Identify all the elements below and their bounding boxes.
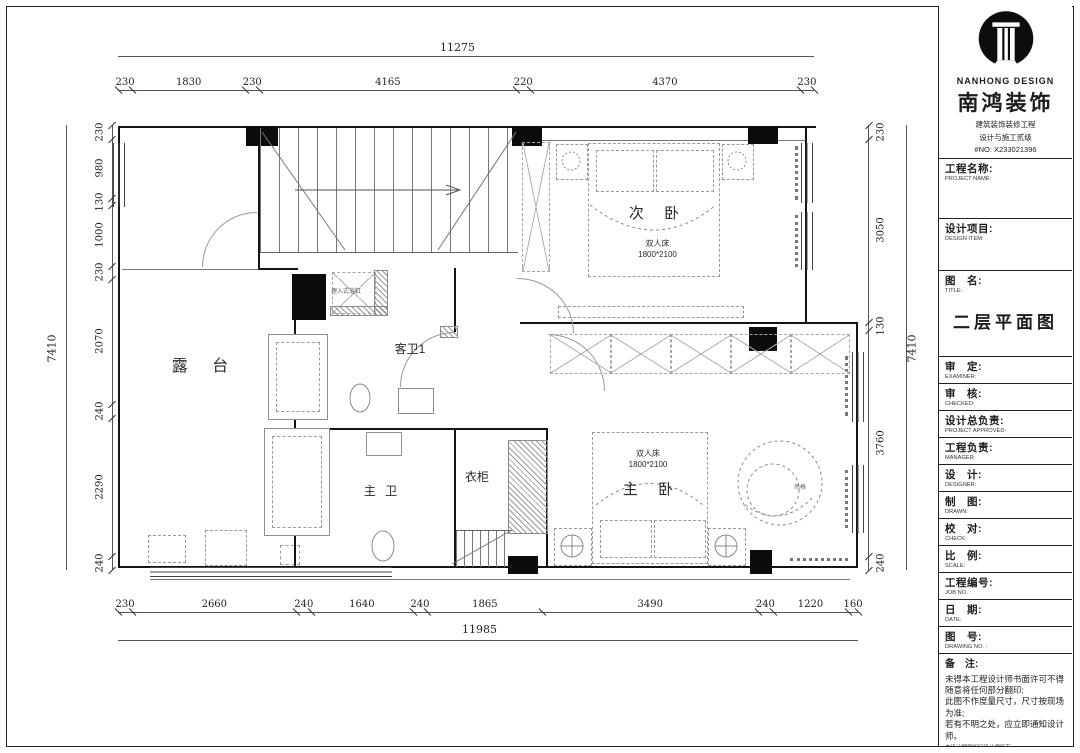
dim-label: 240 <box>756 599 775 610</box>
bed-type: 双人床 <box>610 238 705 249</box>
dim-label: 160 <box>844 599 863 610</box>
pillow <box>656 150 714 192</box>
note-line: 随意将任何部分翻印; <box>945 685 1066 696</box>
bed-label-secondary: 双人床 1800*2100 <box>610 238 705 260</box>
tb-field-check: 校 对:CHECK: <box>939 519 1072 546</box>
dim-label: 240 <box>410 599 429 610</box>
dim-label: 2660 <box>202 599 227 610</box>
wall-edge <box>150 579 850 580</box>
dim-tick <box>108 567 116 575</box>
field-label-en: TITLE: <box>945 288 1060 294</box>
dim-label: 1220 <box>798 599 823 610</box>
door-arc <box>517 278 574 333</box>
radiator-coil <box>795 146 798 200</box>
room-label-terrace: 露 台 <box>150 352 260 376</box>
field-label-cn: 图 号: <box>945 629 1066 644</box>
dim-chain-bottom: 23026602401640240186534902401220160 <box>118 588 858 613</box>
field-label-en: CHECK: <box>945 536 1060 542</box>
pillow <box>596 150 654 192</box>
nightstand <box>554 528 592 566</box>
corridor-closet <box>670 334 732 374</box>
terrace-furniture <box>280 545 300 565</box>
tb-field-drawn: 制 图:DRAWN: <box>939 492 1072 519</box>
dim-label: 3760 <box>876 430 887 455</box>
wall-segment <box>258 268 298 270</box>
field-label-cn: 图 名: <box>945 273 1066 288</box>
field-label-cn: 制 图: <box>945 494 1066 509</box>
nanhong-logo-icon <box>975 10 1037 72</box>
dim-tick <box>108 400 116 408</box>
tb-field-job-no: 工程编号:JOB NO. : <box>939 573 1072 600</box>
dim-label: 230 <box>95 122 106 141</box>
tb-field-designer: 设 计:DESIGNER: <box>939 465 1072 492</box>
bay-window-sill <box>558 306 744 318</box>
dim-label: 230 <box>116 77 135 88</box>
brand-name-cn: 南鸿装饰 <box>958 87 1054 117</box>
bed-size: 1800*2100 <box>610 249 705 260</box>
dim-label: 230 <box>243 77 262 88</box>
dim-label: 4370 <box>652 77 677 88</box>
dim-label: 2070 <box>95 329 106 354</box>
staircase-upper <box>260 128 518 253</box>
dim-tick <box>865 326 873 334</box>
brand-name-en: NANHONG DESIGN <box>957 76 1055 86</box>
room-label-guest-bath: 客卫1 <box>383 340 437 357</box>
bathtub-inner <box>276 342 320 412</box>
window <box>801 143 813 203</box>
dim-label: 4165 <box>375 77 400 88</box>
shower-wall <box>330 306 388 316</box>
window <box>852 352 864 422</box>
field-label-en: EXAMINER: <box>945 374 1060 380</box>
dim-total-line-left <box>66 125 67 570</box>
radiator-coil <box>795 215 798 267</box>
dim-tick <box>865 552 873 560</box>
chair-label: 吊椅 <box>794 482 806 491</box>
field-label-en: PROJECT APPROVED: <box>945 428 1060 434</box>
field-label-cn: 审 核: <box>945 386 1066 401</box>
dim-tick <box>108 552 116 560</box>
dim-tick <box>539 608 547 616</box>
dim-total-line-top <box>118 56 814 57</box>
wall-edge <box>122 269 258 270</box>
field-label-en: DESIGN ITEM: <box>945 236 1060 242</box>
dim-label: 1865 <box>472 599 497 610</box>
sink <box>366 432 402 456</box>
note-line: 未得本工程设计师书面许可不得 <box>945 674 1066 685</box>
tb-field-project-name: 工程名称:PROJECT NAME: <box>939 159 1072 219</box>
dim-label: 220 <box>514 77 533 88</box>
dim-total-right: 7410 <box>906 335 919 363</box>
brand-license: #NO: X233021396 <box>974 145 1036 154</box>
door-arc <box>202 212 257 267</box>
tb-field-checked: 审 核:CHECKED: <box>939 384 1072 411</box>
dim-label: 240 <box>294 599 313 610</box>
field-label-cn: 工程名称: <box>945 161 1066 176</box>
corridor-closet <box>790 334 850 374</box>
field-label-en: MANAGER: <box>945 455 1060 461</box>
drawing-sheet: 230183023041652204370230 11275 230266024… <box>0 0 1080 753</box>
title-block: NANHONG DESIGN 南鸿装饰 建筑装饰装修工程 设计与施工贰级 #NO… <box>938 6 1072 746</box>
dim-label: 1830 <box>176 77 201 88</box>
field-label-en: DESIGNER: <box>945 482 1060 488</box>
dim-chain-right: 23030501303760240 <box>868 125 889 570</box>
dim-label: 2290 <box>95 474 106 499</box>
floor-plan: 230183023041652204370230 11275 230266024… <box>0 0 938 753</box>
note-line: 若有不明之处，应立即通知设计 <box>945 719 1066 730</box>
notes-section: 备 注: 未得本工程设计师书面许可不得 随意将任何部分翻印; 此图不作度量尺寸，… <box>939 654 1072 746</box>
wall-segment <box>454 268 456 332</box>
dim-total-left: 7410 <box>46 335 59 363</box>
dim-chain-top: 230183023041652204370230 <box>118 64 814 91</box>
field-label-en: DRAWING NO. : <box>945 644 1060 650</box>
field-label-cn: 比 例: <box>945 548 1066 563</box>
note-line: 师。 <box>945 731 1066 742</box>
drawing-title: 二层平面图 <box>945 308 1066 333</box>
tb-field-title: 图 名:TITLE:二层平面图 <box>939 271 1072 357</box>
dim-label: 240 <box>95 401 106 420</box>
field-label-en: JOB NO. : <box>945 590 1060 596</box>
room-label-master-bath: 主 卫 <box>352 482 412 499</box>
dim-tick <box>865 567 873 575</box>
room-label-master-bedroom: 主 卧 <box>602 478 702 499</box>
corridor-closet <box>550 334 612 374</box>
field-label-cn: 日 期: <box>945 602 1066 617</box>
dim-tick <box>108 415 116 423</box>
wardrobe-cabinet <box>508 440 548 534</box>
dim-total-line-bottom <box>118 640 858 641</box>
window <box>852 465 864 533</box>
wall-hatch <box>440 326 458 338</box>
field-label-cn: 设计总负责: <box>945 413 1066 428</box>
title-block-fields: 工程名称:PROJECT NAME:设计项目:DESIGN ITEM:图 名:T… <box>939 159 1072 654</box>
nightstand <box>556 144 588 180</box>
corridor-closet <box>730 334 792 374</box>
dim-tick <box>108 122 116 130</box>
field-label-en: PROJECT NAME: <box>945 176 1060 182</box>
note-line: 此图不作度量尺寸，尺寸按现场 <box>945 696 1066 707</box>
bed-size: 1800*2100 <box>598 459 698 470</box>
dim-label: 230 <box>95 263 106 282</box>
staircase-lower <box>456 530 512 567</box>
dim-tick <box>108 262 116 270</box>
room-label-wardrobe: 衣柜 <box>452 468 502 485</box>
tb-field-manager: 工程负责:MANAGER: <box>939 438 1072 465</box>
bed-label-master: 双人床 1800*2100 <box>598 448 698 470</box>
field-label-en: DATE: <box>945 617 1060 623</box>
nightstand <box>722 144 754 180</box>
dim-total-bottom: 11985 <box>462 623 497 636</box>
sink <box>398 388 434 414</box>
terrace-furniture <box>148 535 186 563</box>
dim-label: 230 <box>797 77 816 88</box>
terrace-furniture <box>205 530 247 566</box>
field-label-cn: 审 定: <box>945 359 1066 374</box>
nightstand <box>708 528 746 566</box>
tb-field-date: 日 期:DATE: <box>939 600 1072 627</box>
dim-total-top: 11275 <box>440 41 475 54</box>
notes-label: 备 注: <box>945 658 1066 672</box>
corridor-closet <box>610 334 672 374</box>
terrace-railing <box>150 567 392 577</box>
radiator-coil <box>845 470 848 528</box>
wall-segment <box>296 428 546 430</box>
field-label-cn: 工程编号: <box>945 575 1066 590</box>
dim-label: 230 <box>876 122 887 141</box>
dim-tick <box>865 122 873 130</box>
brand-subtitle-1: 建筑装饰装修工程 <box>976 119 1036 130</box>
field-label-en: DRAWN: <box>945 509 1060 515</box>
dim-label: 3050 <box>876 218 887 243</box>
shower-tray-inner <box>272 436 322 528</box>
room-label-secondary-bedroom: 次 卧 <box>608 202 708 223</box>
note-line: 为准; <box>945 708 1066 719</box>
dim-tick <box>108 276 116 284</box>
field-label-en: CHECKED: <box>945 401 1060 407</box>
tub-label: 埋入式浴缸 <box>331 286 361 295</box>
logo-block: NANHONG DESIGN 南鸿装饰 建筑装饰装修工程 设计与施工贰级 #NO… <box>939 6 1072 159</box>
dim-label: 130 <box>95 192 106 211</box>
tb-field-examiner: 审 定:EXAMINER: <box>939 357 1072 384</box>
radiator-coil <box>790 558 848 561</box>
field-label-cn: 校 对: <box>945 521 1066 536</box>
pillow <box>600 520 652 558</box>
tb-field-project-approved: 设计总负责:PROJECT APPROVED: <box>939 411 1072 438</box>
dim-label: 3490 <box>637 599 662 610</box>
brand-subtitle-2: 设计与施工贰级 <box>979 132 1032 143</box>
window <box>113 143 125 207</box>
field-label-en: SCALE: <box>945 563 1060 569</box>
field-label-cn: 工程负责: <box>945 440 1066 455</box>
dim-label: 130 <box>876 316 887 335</box>
dim-tick <box>865 135 873 143</box>
window <box>801 212 813 270</box>
dim-chain-left: 230980130100023020702402290240 <box>92 125 113 570</box>
column <box>508 556 538 574</box>
tb-field-scale: 比 例:SCALE: <box>939 546 1072 573</box>
dim-label: 1000 <box>95 223 106 248</box>
closet <box>522 142 550 272</box>
bed-type: 双人床 <box>598 448 698 459</box>
field-label-cn: 设 计: <box>945 467 1066 482</box>
column <box>750 550 772 574</box>
column <box>292 274 326 320</box>
dim-label: 1640 <box>349 599 374 610</box>
pillow <box>654 520 706 558</box>
dim-label: 230 <box>116 599 135 610</box>
tb-field-design-item: 设计项目:DESIGN ITEM: <box>939 219 1072 271</box>
tb-field-drawing-no: 图 号:DRAWING NO. : <box>939 627 1072 654</box>
notes-fineprint: 本设计解释权归设计师所有。 <box>945 745 1066 746</box>
dim-label: 980 <box>95 159 106 178</box>
column <box>748 126 778 144</box>
dim-label: 240 <box>95 553 106 572</box>
field-label-cn: 设计项目: <box>945 221 1066 236</box>
dim-label: 240 <box>876 553 887 572</box>
